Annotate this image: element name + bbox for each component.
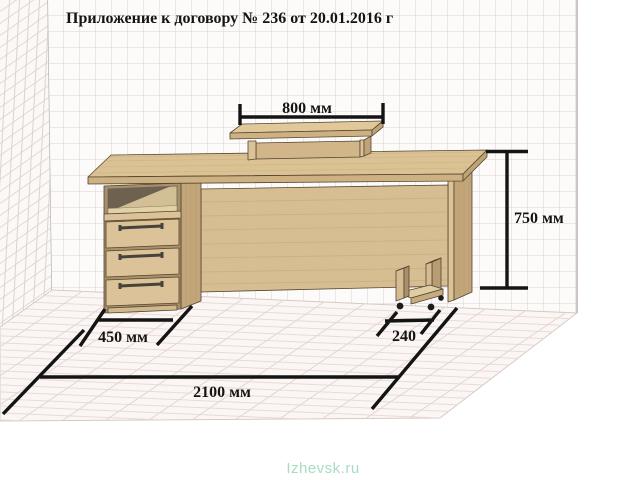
watermark: Izhevsk.ru [286, 460, 359, 477]
pedestal-width-label: 450 мм [98, 329, 148, 346]
drawer-3 [106, 277, 179, 306]
caster-wheel [438, 295, 444, 301]
shelf-right-support [360, 140, 364, 157]
room-left-wall [0, 0, 52, 327]
desk-technical-drawing: 800 мм 750 мм 450 мм 240 2100 мм Приложе… [0, 0, 640, 480]
page-title: Приложение к договору № 236 от 20.01.201… [66, 10, 393, 27]
furniture-drawing-page: 800 мм 750 мм 450 мм 240 2100 мм Приложе… [0, 0, 640, 480]
room-floor [0, 290, 577, 421]
shelf-back-panel [256, 141, 360, 159]
caster-wheel [397, 303, 404, 310]
drawer-1 [106, 219, 179, 248]
total-length-label: 2100 мм [193, 384, 251, 401]
shelf-width-label: 800 мм [282, 100, 332, 117]
caster-wheel [428, 304, 435, 311]
drawer-2 [106, 248, 179, 277]
desk-drawer-pedestal [104, 176, 201, 313]
desk-modesty-panel [201, 185, 448, 292]
stand-width-label: 240 [392, 328, 416, 345]
shelf-left-support [248, 141, 256, 160]
pedestal-open-shelf [108, 186, 177, 215]
height-label: 750 мм [514, 210, 564, 227]
